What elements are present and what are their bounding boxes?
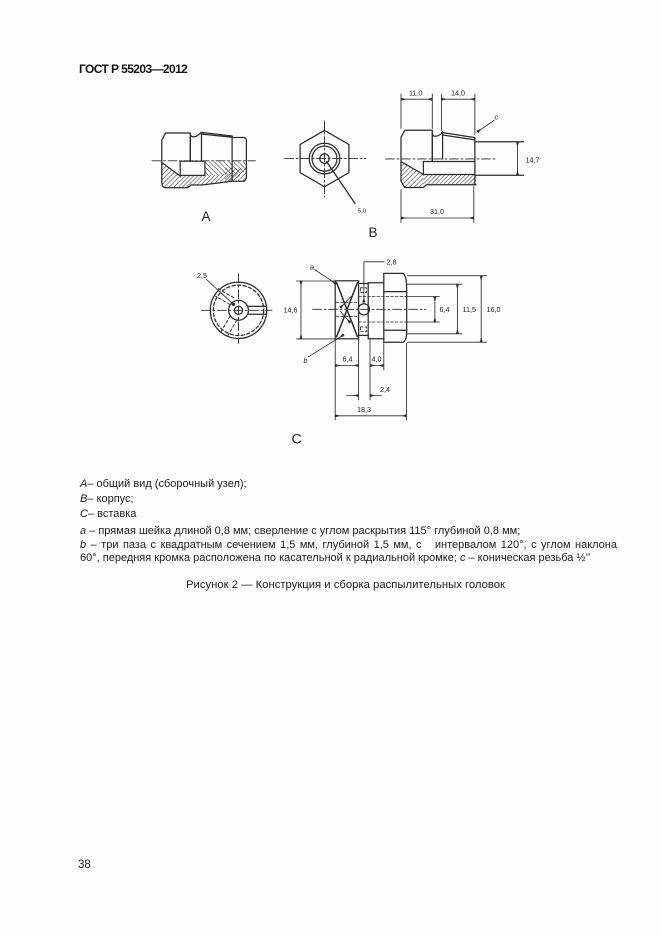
- svg-text:14,0: 14,0: [451, 88, 465, 97]
- svg-text:4,0: 4,0: [372, 355, 382, 364]
- svg-text:31,0: 31,0: [430, 207, 444, 216]
- svg-text:14,6: 14,6: [284, 305, 298, 314]
- svg-text:2,5: 2,5: [197, 271, 207, 280]
- svg-text:C: C: [292, 432, 302, 448]
- svg-text:c: c: [495, 113, 499, 122]
- svg-text:2,8: 2,8: [387, 258, 397, 267]
- svg-text:18,3: 18,3: [357, 405, 371, 414]
- svg-text:6,4: 6,4: [440, 305, 450, 314]
- svg-text:B: B: [369, 225, 378, 240]
- svg-text:2,4: 2,4: [380, 385, 390, 394]
- svg-text:a: a: [310, 263, 314, 272]
- svg-text:b: b: [304, 356, 308, 365]
- svg-text:6,4: 6,4: [343, 355, 353, 364]
- svg-text:16,0: 16,0: [487, 305, 501, 314]
- svg-text:11,5: 11,5: [463, 305, 476, 314]
- svg-text:14,7: 14,7: [526, 155, 540, 164]
- svg-text:A: A: [202, 209, 211, 224]
- svg-text:11,0: 11,0: [409, 88, 422, 97]
- svg-text:5,0: 5,0: [358, 208, 367, 214]
